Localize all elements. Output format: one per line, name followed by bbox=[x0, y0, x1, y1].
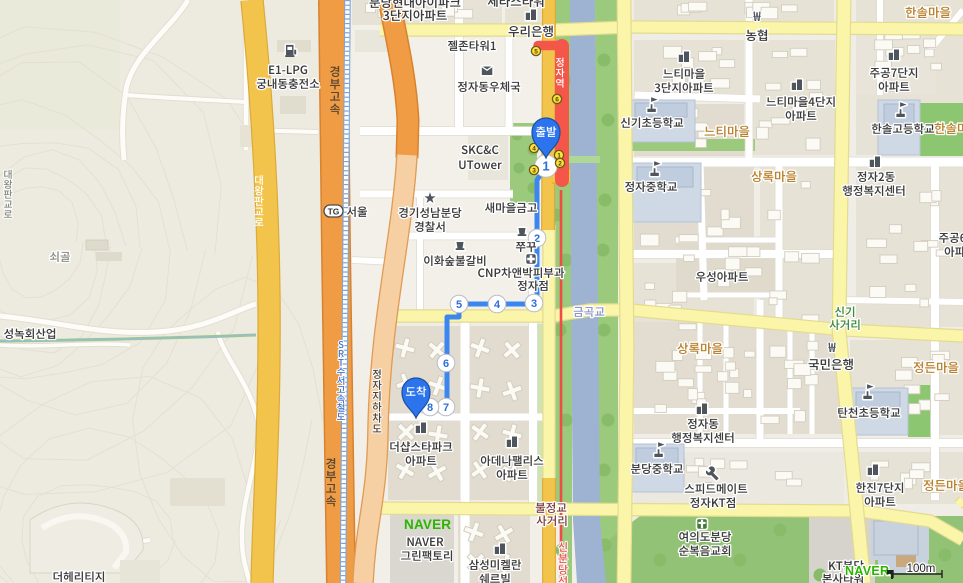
svg-text:4: 4 bbox=[532, 145, 536, 152]
svg-text:7: 7 bbox=[443, 402, 449, 414]
svg-text:2: 2 bbox=[558, 160, 562, 167]
svg-text:5: 5 bbox=[534, 48, 538, 55]
svg-text:NAVER: NAVER bbox=[845, 564, 889, 578]
svg-text:8: 8 bbox=[427, 402, 433, 414]
svg-text:NAVER: NAVER bbox=[404, 517, 451, 532]
svg-text:100m: 100m bbox=[907, 563, 936, 575]
svg-text:TG: TG bbox=[328, 207, 340, 217]
svg-text:3: 3 bbox=[532, 167, 536, 174]
svg-text:6: 6 bbox=[443, 358, 449, 370]
svg-text:5: 5 bbox=[456, 299, 462, 311]
svg-text:4: 4 bbox=[494, 299, 501, 311]
svg-text:6: 6 bbox=[555, 96, 559, 103]
svg-text:3: 3 bbox=[531, 298, 537, 310]
svg-text:1: 1 bbox=[542, 159, 549, 174]
